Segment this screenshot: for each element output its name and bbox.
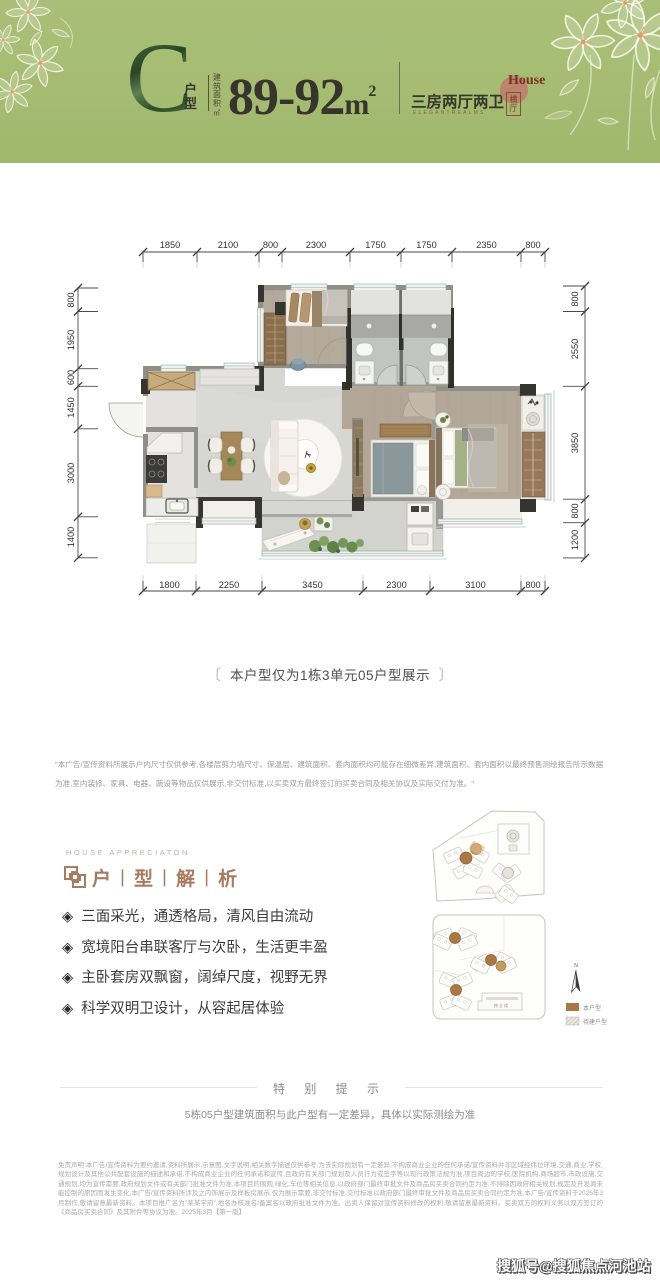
svg-text:1850: 1850 [160, 240, 180, 250]
svg-text:800: 800 [570, 503, 580, 518]
svg-text:2350: 2350 [476, 240, 496, 250]
svg-text:1450: 1450 [66, 397, 76, 417]
svg-text:1750: 1750 [365, 240, 385, 250]
svg-text:待建户型: 待建户型 [583, 1018, 607, 1026]
svg-text:N: N [574, 963, 578, 969]
svg-text:1950: 1950 [66, 330, 76, 350]
svg-text:1750: 1750 [416, 240, 436, 250]
svg-text:物 业 楼: 物 业 楼 [494, 1002, 508, 1008]
svg-text:2300: 2300 [386, 580, 406, 590]
svg-text:本户型: 本户型 [583, 1004, 601, 1012]
svg-text:800: 800 [263, 240, 278, 250]
svg-text:3000: 3000 [66, 463, 76, 483]
svg-text:800: 800 [525, 240, 540, 250]
svg-text:800: 800 [570, 291, 580, 306]
svg-text:600: 600 [66, 370, 76, 385]
svg-text:1800: 1800 [159, 580, 179, 590]
svg-text:800: 800 [525, 580, 540, 590]
svg-text:3850: 3850 [570, 433, 580, 453]
svg-text:3100: 3100 [465, 580, 485, 590]
svg-text:2250: 2250 [219, 580, 239, 590]
svg-text:3450: 3450 [302, 580, 322, 590]
svg-text:800: 800 [66, 292, 76, 307]
svg-text:1400: 1400 [66, 527, 76, 547]
svg-text:1200: 1200 [570, 530, 580, 550]
svg-text:2300: 2300 [306, 240, 326, 250]
svg-text:2100: 2100 [218, 240, 238, 250]
svg-text:2550: 2550 [570, 339, 580, 359]
